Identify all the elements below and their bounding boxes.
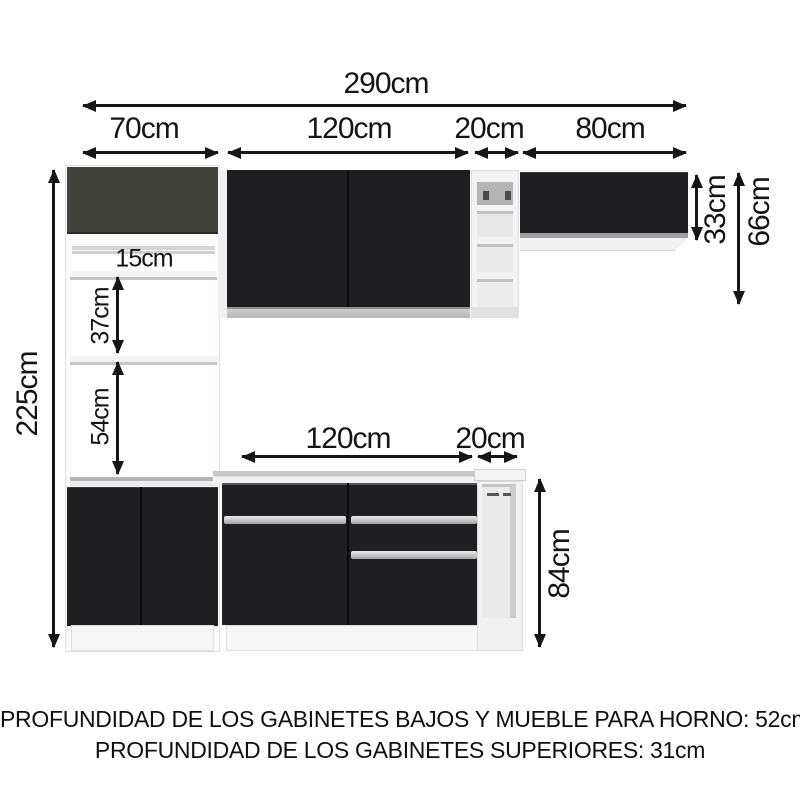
depth-note-upper-cabinets: PROFUNDIDAD DE LOS GABINETES SUPERIORES:… <box>0 737 800 764</box>
base-cabinet-seam <box>347 483 349 625</box>
dim-arrow-shelf-gap-bottom <box>116 362 119 474</box>
dim-label-right-cabinet-width: 80cm <box>575 114 644 144</box>
base-shelf-hardware-mark-1 <box>487 493 499 496</box>
base-door-handle <box>224 516 346 524</box>
dim-label-base-width: 120cm <box>305 424 390 454</box>
dim-arrow-total-width <box>83 104 686 107</box>
dim-label-base-height: 84cm <box>545 529 575 598</box>
kitchen-dimension-diagram: 290cm 70cm 120cm 20cm 80cm 225cm 33cm 66… <box>0 0 800 800</box>
dim-arrow-base-width <box>242 455 472 458</box>
upper-shelf-bottom-trim <box>471 307 519 318</box>
dim-label-tall-width: 70cm <box>109 114 178 144</box>
tall-cabinet-bottom-slab <box>70 477 217 487</box>
upper-shelf-opening-2 <box>477 211 513 237</box>
dim-arrow-shelf-gap-mid <box>116 277 119 353</box>
dim-label-shelf-gap-top: 15cm <box>115 247 172 272</box>
dim-arrow-wall-width <box>228 151 468 154</box>
upper-shelf-opening-4 <box>477 279 513 307</box>
base-plinth <box>226 625 520 651</box>
dim-arrow-upper-shelf-width <box>475 151 518 154</box>
upper-shelf-hardware-mark-2 <box>505 191 511 200</box>
dim-label-base-shelf-width: 20cm <box>455 424 524 454</box>
upper-shelf-opening-3 <box>477 244 513 272</box>
dim-label-total-width: 290cm <box>343 69 428 99</box>
dim-label-wall-width: 120cm <box>306 114 391 144</box>
wall-cabinet-120-bottom-trim <box>227 307 470 318</box>
dim-arrow-right-cabinet-width <box>523 151 686 154</box>
tall-cabinet-bottom-doors <box>67 487 218 626</box>
tall-cabinet-shelf-1 <box>70 270 217 280</box>
tall-cabinet-shelf-2 <box>70 355 217 365</box>
base-drawer-handle-bottom <box>351 551 477 559</box>
wall-cabinet-side-panel <box>218 170 227 318</box>
dim-label-right-cabinet-height: 33cm <box>701 175 731 244</box>
base-shelf-unit-opening <box>482 484 516 618</box>
dim-arrow-upper-zone-height <box>737 173 740 304</box>
dim-label-shelf-gap-mid: 37cm <box>89 287 114 344</box>
wall-cabinet-80-trim <box>520 233 688 238</box>
tall-cabinet-plinth <box>71 625 214 651</box>
dim-arrow-tall-width <box>83 151 218 154</box>
wall-cabinet-80-underside <box>520 238 688 251</box>
tall-cabinet-door-seam <box>140 487 142 625</box>
wall-cabinet-120-door-seam <box>347 170 349 307</box>
dim-label-upper-shelf-width: 20cm <box>454 114 523 144</box>
dim-arrow-base-height <box>538 479 541 647</box>
base-drawer-handle-top <box>351 516 477 524</box>
wall-cabinet-80-door <box>520 172 688 234</box>
countertop <box>213 471 480 483</box>
dim-arrow-total-height <box>52 170 55 647</box>
tall-cabinet-oven-door <box>67 167 218 234</box>
dim-label-upper-zone-height: 66cm <box>745 177 775 246</box>
upper-shelf-hardware-mark-1 <box>483 191 489 200</box>
dim-arrow-right-cabinet-height <box>695 175 698 240</box>
base-shelf-hardware-mark-2 <box>503 493 511 496</box>
dim-arrow-base-shelf-width <box>478 455 517 458</box>
dim-label-total-height: 225cm <box>13 351 43 436</box>
depth-note-lower-cabinets: PROFUNDIDAD DE LOS GABINETES BAJOS Y MUE… <box>0 706 800 733</box>
base-shelf-unit-top <box>474 469 526 481</box>
dim-label-shelf-gap-bottom: 54cm <box>89 388 114 445</box>
